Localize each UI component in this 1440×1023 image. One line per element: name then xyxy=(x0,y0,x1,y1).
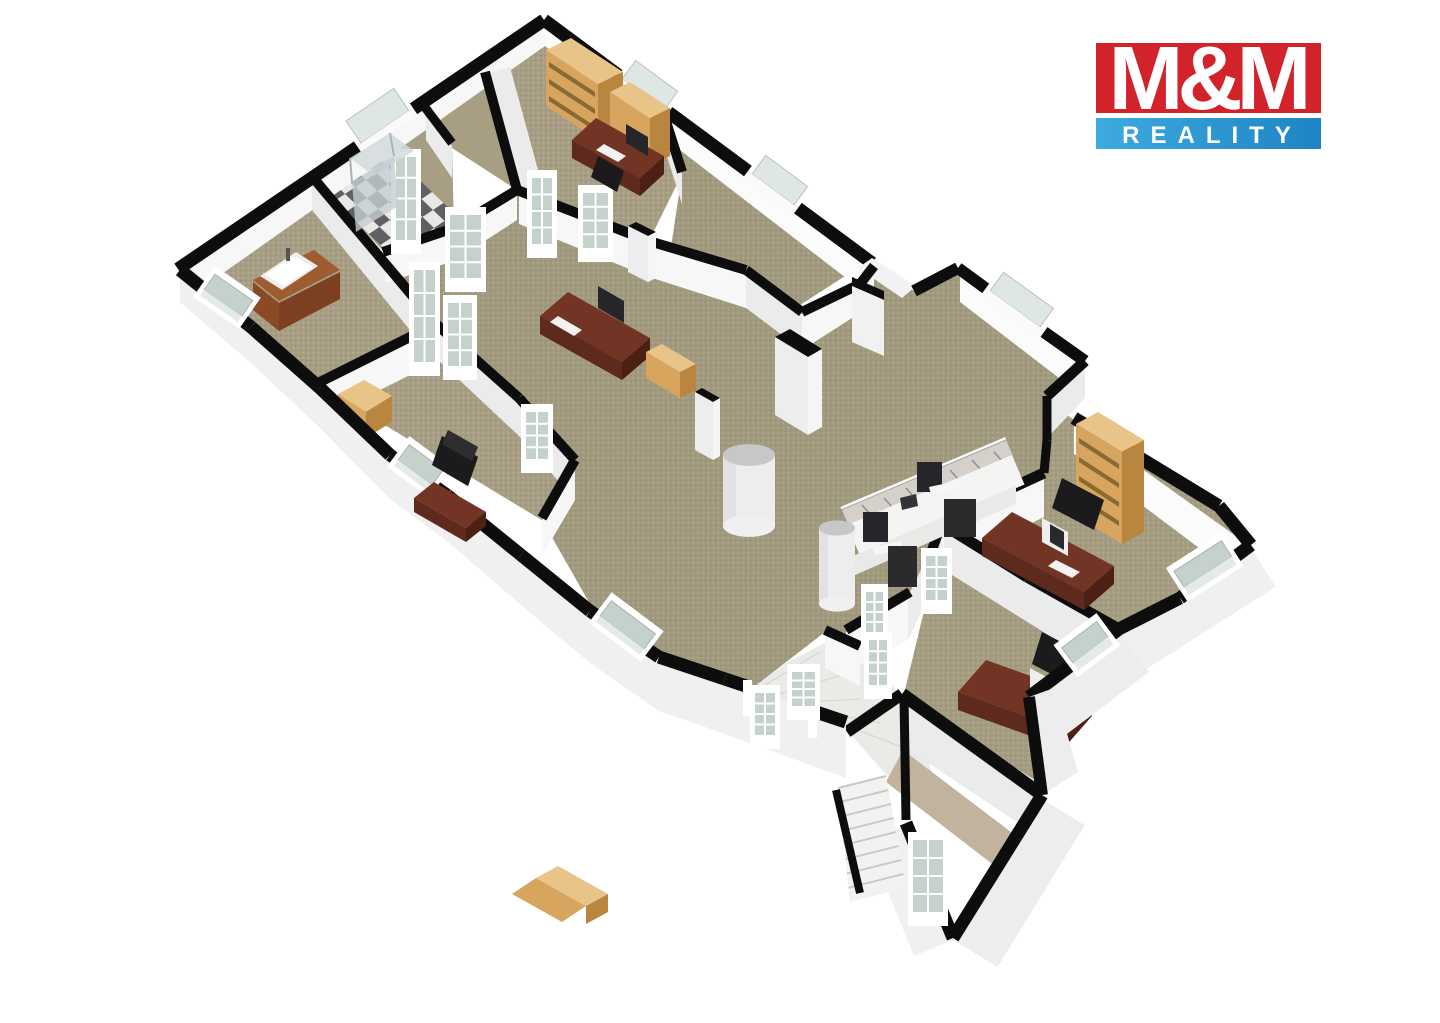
svg-text:REALITY: REALITY xyxy=(1122,122,1302,149)
svg-text:M&M: M&M xyxy=(1109,29,1306,129)
